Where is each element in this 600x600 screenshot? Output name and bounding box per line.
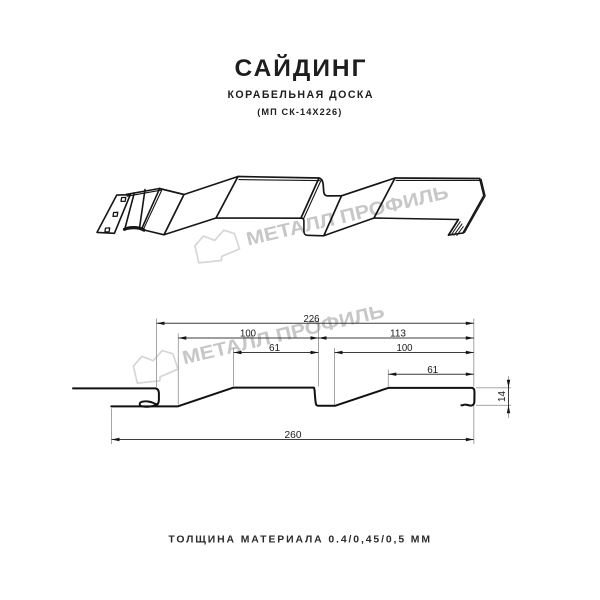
svg-text:ТОЛЩИНА МАТЕРИАЛА 0.4/0,45/0,5: ТОЛЩИНА МАТЕРИАЛА 0.4/0,45/0,5 ММ [168,535,430,546]
svg-text:100: 100 [240,328,256,340]
svg-text:14: 14 [496,391,508,402]
svg-text:113: 113 [390,328,406,340]
svg-text:САЙДИНГ: САЙДИНГ [235,54,366,82]
svg-text:(МП СК-14Х226): (МП СК-14Х226) [257,107,341,117]
svg-text:МЕТАЛЛ ПРОФИЛЬ: МЕТАЛЛ ПРОФИЛЬ [244,182,450,250]
svg-text:61: 61 [427,364,438,376]
svg-text:226: 226 [304,313,320,325]
svg-text:МЕТАЛЛ ПРОФИЛЬ: МЕТАЛЛ ПРОФИЛЬ [180,301,386,369]
svg-text:100: 100 [397,342,413,354]
svg-text:260: 260 [285,429,302,441]
svg-text:61: 61 [269,342,280,354]
svg-text:КОРАБЕЛЬНАЯ ДОСКА: КОРАБЕЛЬНАЯ ДОСКА [228,89,373,101]
